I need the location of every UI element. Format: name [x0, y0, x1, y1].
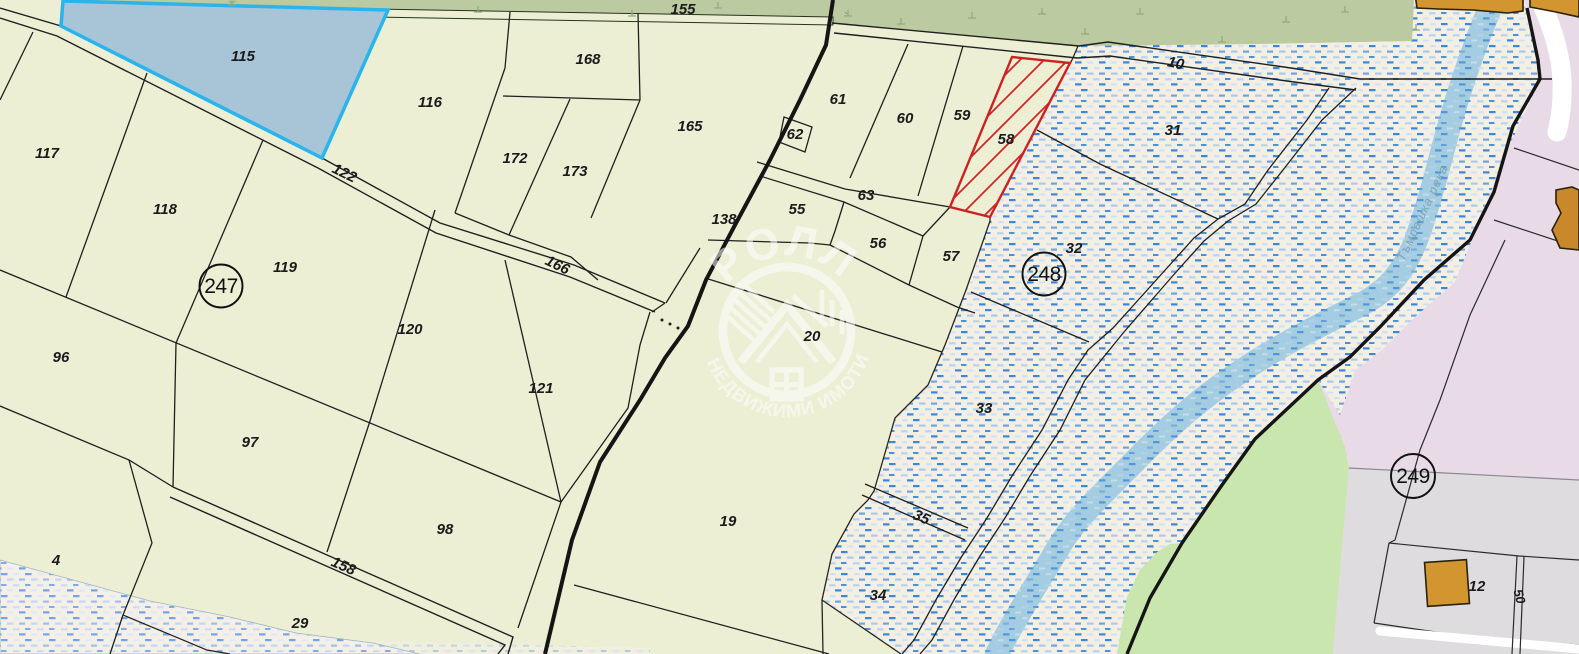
svg-text:62: 62 [787, 126, 804, 143]
svg-text:96: 96 [53, 349, 70, 366]
svg-text:119: 119 [273, 259, 298, 276]
svg-text:173: 173 [562, 163, 588, 180]
svg-text:57: 57 [943, 248, 960, 265]
svg-text:249: 249 [1396, 465, 1430, 488]
svg-text:12: 12 [1469, 578, 1486, 595]
svg-text:172: 172 [502, 150, 528, 167]
svg-text:116: 116 [418, 94, 443, 111]
svg-text:168: 168 [575, 51, 601, 68]
svg-text:61: 61 [830, 91, 847, 108]
svg-text:33: 33 [976, 400, 993, 417]
svg-text:32: 32 [1066, 240, 1083, 257]
svg-text:20: 20 [803, 328, 821, 345]
svg-text:115: 115 [231, 48, 256, 65]
svg-text:121: 121 [528, 380, 553, 397]
svg-text:63: 63 [858, 187, 875, 204]
svg-text:19: 19 [720, 513, 737, 530]
svg-text:97: 97 [242, 434, 259, 451]
svg-text:29: 29 [291, 615, 309, 632]
svg-text:56: 56 [870, 235, 887, 252]
svg-text:138: 138 [711, 211, 737, 228]
svg-text:60: 60 [897, 110, 914, 127]
svg-text:117: 117 [35, 145, 60, 162]
svg-text:31: 31 [1165, 122, 1182, 139]
svg-text:59: 59 [954, 107, 971, 124]
svg-text:120: 120 [397, 321, 423, 338]
svg-text:55: 55 [789, 201, 806, 218]
svg-text:248: 248 [1027, 263, 1061, 286]
svg-text:58: 58 [998, 131, 1015, 148]
svg-text:247: 247 [204, 275, 238, 298]
svg-text:98: 98 [437, 521, 454, 538]
svg-text:34: 34 [870, 587, 887, 604]
svg-text:4: 4 [51, 552, 61, 569]
svg-text:165: 165 [677, 118, 703, 135]
svg-text:155: 155 [670, 1, 696, 18]
svg-text:118: 118 [153, 201, 178, 218]
